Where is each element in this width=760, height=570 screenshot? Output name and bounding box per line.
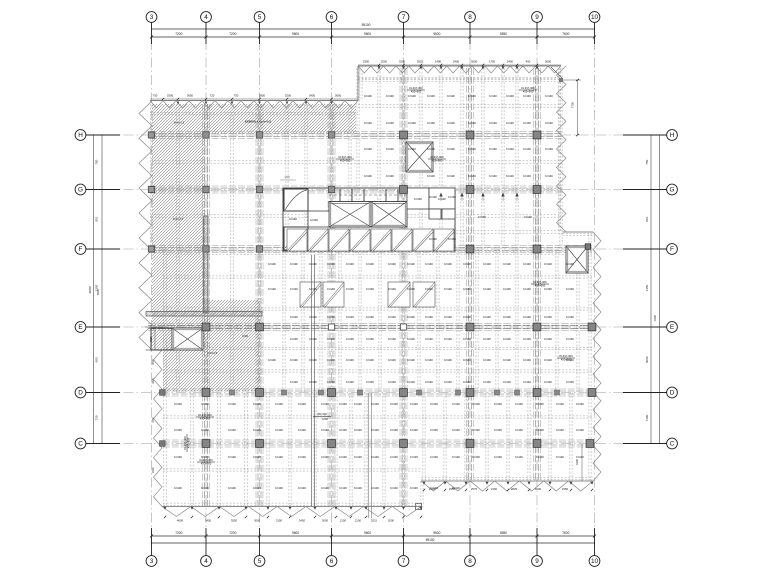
svg-text:b=100: b=100 <box>523 121 531 125</box>
svg-text:59100: 59100 <box>362 23 371 27</box>
svg-text:b=100: b=100 <box>346 337 354 341</box>
svg-text:b=100: b=100 <box>201 428 209 432</box>
svg-text:b=100: b=100 <box>321 486 329 490</box>
svg-text:b=100: b=100 <box>388 358 396 362</box>
svg-text:b=100: b=100 <box>339 486 347 490</box>
svg-text:b=100: b=100 <box>366 262 374 266</box>
svg-text:b=100: b=100 <box>228 486 236 490</box>
svg-text:b=100: b=100 <box>472 402 480 406</box>
svg-text:b=b=1.5: b=b=1.5 <box>173 217 184 221</box>
svg-text:b=100: b=100 <box>506 147 514 151</box>
svg-text:3500: 3500 <box>471 60 478 64</box>
svg-text:3125: 3125 <box>150 336 153 342</box>
svg-text:b=100: b=100 <box>407 287 415 291</box>
svg-text:b=100: b=100 <box>472 428 480 432</box>
svg-text:2850: 2850 <box>259 94 266 98</box>
svg-text:b=100: b=100 <box>536 402 544 406</box>
svg-text:5900: 5900 <box>96 288 100 295</box>
svg-text:b=100: b=100 <box>228 455 236 459</box>
svg-text:b=100: b=100 <box>310 218 318 222</box>
svg-text:4: 4 <box>204 14 208 21</box>
svg-text:2350: 2350 <box>363 60 370 64</box>
svg-text:400×900: 400×900 <box>201 462 212 466</box>
svg-text:810: 810 <box>645 216 649 221</box>
svg-text:b=100: b=100 <box>346 380 354 384</box>
svg-text:400×900: 400×900 <box>200 417 211 421</box>
svg-text:b=100: b=100 <box>503 315 511 319</box>
svg-text:3200: 3200 <box>285 94 292 98</box>
svg-text:KL3(3) 300: KL3(3) 300 <box>521 86 535 90</box>
svg-text:b=100: b=100 <box>408 94 416 98</box>
svg-text:b=100: b=100 <box>321 455 329 459</box>
svg-text:b=100: b=100 <box>275 428 283 432</box>
svg-text:b=100: b=100 <box>489 147 497 151</box>
svg-text:b=100: b=100 <box>468 147 476 151</box>
svg-text:b=100: b=100 <box>407 315 415 319</box>
svg-text:b=100: b=100 <box>309 262 317 266</box>
svg-text:b=100: b=100 <box>430 455 438 459</box>
svg-text:b=100: b=100 <box>298 428 306 432</box>
svg-text:b=100: b=100 <box>228 402 236 406</box>
svg-text:b=100: b=100 <box>268 358 276 362</box>
svg-text:b=100: b=100 <box>447 121 455 125</box>
svg-text:7: 7 <box>402 14 406 21</box>
svg-text:b=100: b=100 <box>447 147 455 151</box>
svg-text:b=100: b=100 <box>544 337 552 341</box>
svg-text:b=100: b=100 <box>253 455 261 459</box>
svg-text:D: D <box>78 390 83 397</box>
svg-text:b=100: b=100 <box>298 486 306 490</box>
svg-text:b=100: b=100 <box>388 287 396 291</box>
svg-text:b=90: b=90 <box>322 417 328 421</box>
svg-text:2150: 2150 <box>340 519 347 523</box>
svg-text:b=100: b=100 <box>327 380 335 384</box>
svg-text:b=100: b=100 <box>503 358 511 362</box>
svg-text:b=100: b=100 <box>290 380 298 384</box>
svg-text:3250: 3250 <box>381 60 388 64</box>
svg-text:b=100: b=100 <box>489 121 497 125</box>
svg-text:5: 5 <box>258 14 262 21</box>
svg-text:b=100: b=100 <box>544 287 552 291</box>
svg-text:b=100: b=100 <box>346 287 354 291</box>
svg-text:b=100: b=100 <box>468 121 476 125</box>
svg-text:b=100: b=100 <box>366 315 374 319</box>
svg-text:b=100: b=100 <box>339 428 347 432</box>
svg-text:b=100: b=100 <box>468 94 476 98</box>
svg-text:b=100: b=100 <box>275 455 283 459</box>
svg-text:b=100: b=100 <box>444 287 452 291</box>
svg-text:b=100: b=100 <box>506 94 514 98</box>
svg-text:b=100: b=100 <box>576 455 584 459</box>
svg-text:43800: 43800 <box>88 286 92 294</box>
svg-text:b=100: b=100 <box>290 337 298 341</box>
svg-text:b=100: b=100 <box>346 262 354 266</box>
svg-text:E: E <box>78 324 82 331</box>
svg-text:b=100: b=100 <box>576 402 584 406</box>
svg-text:3000: 3000 <box>322 519 329 523</box>
svg-text:b=100: b=100 <box>452 455 460 459</box>
svg-text:400×900: 400×900 <box>535 284 546 288</box>
svg-text:750: 750 <box>234 94 239 98</box>
svg-text:3525: 3525 <box>417 60 424 64</box>
svg-text:7600: 7600 <box>562 32 569 36</box>
svg-text:b=100: b=100 <box>463 262 471 266</box>
svg-text:b=100: b=100 <box>544 315 552 319</box>
svg-text:b=100: b=100 <box>523 174 531 178</box>
svg-text:D: D <box>670 390 675 397</box>
svg-text:2150: 2150 <box>491 487 498 491</box>
svg-text:b=100: b=100 <box>309 380 317 384</box>
svg-text:b=100: b=100 <box>390 402 398 406</box>
svg-text:7200: 7200 <box>229 32 236 36</box>
svg-text:b=100: b=100 <box>201 402 209 406</box>
svg-text:b=100: b=100 <box>427 94 435 98</box>
svg-text:b=100: b=100 <box>364 94 372 98</box>
svg-text:2575: 2575 <box>471 487 478 491</box>
svg-text:9600: 9600 <box>364 531 371 535</box>
svg-text:4300: 4300 <box>653 314 657 321</box>
svg-text:b=100: b=100 <box>408 147 416 151</box>
svg-text:b=100: b=100 <box>366 380 374 384</box>
svg-text:b=100: b=100 <box>506 121 514 125</box>
svg-text:b=100: b=100 <box>268 287 276 291</box>
svg-text:F: F <box>670 246 674 253</box>
svg-text:H: H <box>670 132 675 139</box>
svg-text:b=100: b=100 <box>354 428 362 432</box>
svg-text:b=100: b=100 <box>327 315 335 319</box>
svg-text:b=100: b=100 <box>489 174 497 178</box>
svg-text:b=100: b=100 <box>523 358 531 362</box>
svg-text:F: F <box>79 246 83 253</box>
svg-text:b=100: b=100 <box>275 402 283 406</box>
svg-text:b=100: b=100 <box>523 380 531 384</box>
svg-text:b=100: b=100 <box>366 337 374 341</box>
svg-text:750: 750 <box>153 94 158 98</box>
svg-text:9600: 9600 <box>433 531 440 535</box>
svg-text:1350: 1350 <box>645 284 649 291</box>
svg-text:1715: 1715 <box>284 176 290 179</box>
svg-text:KL3(3) 300: KL3(3) 300 <box>199 458 213 462</box>
svg-text:b=100: b=100 <box>388 337 396 341</box>
svg-text:b=100: b=100 <box>298 455 306 459</box>
svg-text:3350: 3350 <box>562 487 569 491</box>
svg-text:2000: 2000 <box>388 519 395 523</box>
svg-text:b=100: b=100 <box>576 428 584 432</box>
svg-text:8: 8 <box>468 558 472 565</box>
svg-text:b=100: b=100 <box>545 121 553 125</box>
svg-text:b=100: b=100 <box>448 237 456 241</box>
svg-text:b=100: b=100 <box>410 428 418 432</box>
svg-text:b=100: b=100 <box>444 315 452 319</box>
svg-text:59100: 59100 <box>426 538 435 542</box>
svg-text:b=100: b=100 <box>429 195 437 199</box>
svg-text:b=100: b=100 <box>425 262 433 266</box>
svg-text:b=100: b=100 <box>386 94 394 98</box>
svg-text:3650: 3650 <box>187 94 194 98</box>
svg-text:5: 5 <box>258 558 262 565</box>
svg-text:b=100: b=100 <box>309 337 317 341</box>
svg-text:b=100: b=100 <box>545 147 553 151</box>
svg-text:10: 10 <box>591 558 599 565</box>
svg-text:8550: 8550 <box>500 32 507 36</box>
svg-text:b=100: b=100 <box>452 402 460 406</box>
svg-text:b=100: b=100 <box>566 287 574 291</box>
svg-text:b=100: b=100 <box>371 402 379 406</box>
svg-text:b=100: b=100 <box>468 174 476 178</box>
svg-text:C: C <box>78 441 83 448</box>
svg-text:3450: 3450 <box>309 94 316 98</box>
svg-text:b=100: b=100 <box>556 402 564 406</box>
svg-text:KL3(3) 300: KL3(3) 300 <box>533 280 547 284</box>
svg-text:b=100: b=100 <box>309 287 317 291</box>
svg-text:b=100: b=100 <box>430 402 438 406</box>
svg-text:b=100: b=100 <box>407 262 415 266</box>
svg-text:b=100: b=100 <box>275 486 283 490</box>
svg-text:b=100: b=100 <box>483 358 491 362</box>
svg-text:b=100: b=100 <box>290 315 298 319</box>
svg-text:b=100: b=100 <box>354 402 362 406</box>
svg-text:b=100: b=100 <box>463 287 471 291</box>
svg-text:H: H <box>78 132 83 139</box>
svg-text:b=100: b=100 <box>545 174 553 178</box>
svg-text:b=100: b=100 <box>503 287 511 291</box>
svg-text:b=100: b=100 <box>429 237 437 241</box>
svg-text:7200: 7200 <box>175 531 182 535</box>
svg-text:b=100: b=100 <box>544 380 552 384</box>
svg-text:600: 600 <box>95 357 99 362</box>
svg-text:b=100: b=100 <box>483 262 491 266</box>
svg-text:2400: 2400 <box>507 60 514 64</box>
svg-text:3200: 3200 <box>399 60 406 64</box>
svg-text:b=100: b=100 <box>444 262 452 266</box>
svg-text:b=100: b=100 <box>503 262 511 266</box>
svg-text:G: G <box>78 187 83 194</box>
svg-text:b=100: b=100 <box>425 337 433 341</box>
svg-text:450: 450 <box>526 60 531 64</box>
svg-text:4: 4 <box>204 558 208 565</box>
svg-text:1480: 1480 <box>435 60 442 64</box>
svg-text:4600: 4600 <box>177 519 184 523</box>
svg-text:400×900: 400×900 <box>432 159 443 163</box>
svg-text:b=100: b=100 <box>174 455 182 459</box>
svg-text:b=100: b=100 <box>228 428 236 432</box>
svg-text:b=100: b=100 <box>494 455 502 459</box>
svg-text:b=100: b=100 <box>410 402 418 406</box>
svg-text:b=100: b=100 <box>309 315 317 319</box>
svg-text:KL3(3) 300: KL3(3) 300 <box>559 354 573 358</box>
svg-text:2100: 2100 <box>355 519 362 523</box>
svg-text:b=100: b=100 <box>438 197 446 201</box>
svg-text:720: 720 <box>210 94 215 98</box>
svg-text:b=100: b=100 <box>364 147 372 151</box>
svg-text:b=100: b=100 <box>290 287 298 291</box>
svg-text:b=100: b=100 <box>430 428 438 432</box>
svg-text:400×900: 400×900 <box>411 90 422 94</box>
svg-text:b=100: b=100 <box>354 455 362 459</box>
svg-text:b=100: b=100 <box>201 486 209 490</box>
svg-text:b=100: b=100 <box>503 380 511 384</box>
svg-text:b=100: b=100 <box>321 402 329 406</box>
svg-text:b=100: b=100 <box>425 380 433 384</box>
svg-text:3600: 3600 <box>335 94 342 98</box>
svg-text:b=100: b=100 <box>489 94 497 98</box>
svg-text:b=100: b=100 <box>523 315 531 319</box>
svg-text:b=100: b=100 <box>536 428 544 432</box>
svg-text:730: 730 <box>95 415 99 420</box>
svg-text:b=100: b=100 <box>346 358 354 362</box>
svg-text:b=100: b=100 <box>425 358 433 362</box>
svg-text:b=100: b=100 <box>174 428 182 432</box>
svg-text:b=100: b=100 <box>483 380 491 384</box>
svg-text:b=100: b=100 <box>386 174 394 178</box>
svg-text:8550: 8550 <box>500 531 507 535</box>
svg-text:400×900: 400×900 <box>187 437 191 448</box>
svg-text:KL3(3) 300: KL3(3) 300 <box>338 155 352 159</box>
svg-text:b=100: b=100 <box>327 337 335 341</box>
svg-text:b=100: b=100 <box>503 337 511 341</box>
svg-text:7: 7 <box>402 558 406 565</box>
svg-text:b=100: b=100 <box>452 428 460 432</box>
svg-text:10: 10 <box>591 14 599 21</box>
svg-text:b=100: b=100 <box>366 287 374 291</box>
svg-text:750: 750 <box>645 159 649 164</box>
svg-text:b=100: b=100 <box>388 262 396 266</box>
svg-text:b=100: b=100 <box>523 287 531 291</box>
svg-text:3325: 3325 <box>152 378 155 384</box>
svg-text:KL3(3) 300: KL3(3) 300 <box>430 155 444 159</box>
svg-text:b=100: b=100 <box>174 486 182 490</box>
svg-text:b=100: b=100 <box>327 358 335 362</box>
svg-text:b=100: b=100 <box>386 121 394 125</box>
svg-text:b=100: b=100 <box>494 402 502 406</box>
svg-text:4300: 4300 <box>575 458 579 465</box>
svg-text:6000: 6000 <box>645 356 649 363</box>
svg-text:3550: 3550 <box>231 519 238 523</box>
svg-text:4750: 4750 <box>152 417 155 423</box>
svg-text:b=100: b=100 <box>556 455 564 459</box>
svg-text:b=100: b=100 <box>444 337 452 341</box>
svg-text:b=100: b=100 <box>290 262 298 266</box>
svg-text:G: G <box>670 187 675 194</box>
svg-text:b=100: b=100 <box>327 262 335 266</box>
svg-text:b=100: b=100 <box>366 358 374 362</box>
svg-text:8100: 8100 <box>152 467 155 473</box>
svg-text:KL3(3) 300: KL3(3) 300 <box>183 436 187 450</box>
svg-text:7600: 7600 <box>562 531 569 535</box>
svg-text:b=100: b=100 <box>390 428 398 432</box>
svg-text:b=100: b=100 <box>425 287 433 291</box>
svg-text:9: 9 <box>535 14 539 21</box>
svg-text:b=100: b=100 <box>364 174 372 178</box>
svg-text:3300: 3300 <box>167 94 174 98</box>
svg-text:3000: 3000 <box>152 359 155 365</box>
svg-text:b=100: b=100 <box>390 486 398 490</box>
svg-text:b=100: b=100 <box>321 428 329 432</box>
svg-text:KL3(3) 300: KL3(3) 300 <box>198 413 212 417</box>
svg-text:b=100: b=100 <box>388 315 396 319</box>
svg-text:b=b=1.5: b=b=1.5 <box>207 351 218 355</box>
svg-text:b=100: b=100 <box>407 380 415 384</box>
svg-text:b=100: b=100 <box>515 428 523 432</box>
svg-text:b=100: b=100 <box>268 262 276 266</box>
svg-text:b=100: b=100 <box>478 215 486 219</box>
svg-text:1750: 1750 <box>489 60 496 64</box>
svg-text:2400: 2400 <box>453 60 460 64</box>
svg-text:b=100: b=100 <box>494 428 502 432</box>
svg-text:b=100: b=100 <box>427 174 435 178</box>
svg-text:9600: 9600 <box>433 32 440 36</box>
svg-text:3500: 3500 <box>545 60 552 64</box>
svg-text:6: 6 <box>330 14 334 21</box>
svg-text:b=100: b=100 <box>463 337 471 341</box>
svg-text:E: E <box>670 324 674 331</box>
svg-text:6: 6 <box>330 558 334 565</box>
svg-text:3: 3 <box>150 558 154 565</box>
svg-text:b=100: b=100 <box>414 197 422 201</box>
svg-text:b=100: b=100 <box>544 358 552 362</box>
svg-text:400×900: 400×900 <box>561 358 572 362</box>
svg-text:b=100: b=100 <box>483 315 491 319</box>
svg-text:8: 8 <box>468 14 472 21</box>
svg-text:b=100: b=100 <box>463 380 471 384</box>
svg-text:b=100: b=100 <box>566 337 574 341</box>
svg-text:b=100: b=100 <box>253 428 261 432</box>
svg-text:7200: 7200 <box>175 32 182 36</box>
svg-text:7700: 7700 <box>571 101 575 108</box>
svg-text:b=100: b=100 <box>523 147 531 151</box>
svg-text:2521: 2521 <box>371 519 378 523</box>
svg-text:1130: 1130 <box>429 487 435 491</box>
svg-text:b=100: b=100 <box>390 455 398 459</box>
svg-text:b=100: b=100 <box>346 315 354 319</box>
svg-text:b=100: b=100 <box>523 262 531 266</box>
svg-text:C: C <box>670 441 675 448</box>
svg-text:b=100: b=100 <box>289 217 297 221</box>
svg-text:b=100: b=100 <box>523 337 531 341</box>
svg-text:b=100: b=100 <box>253 486 261 490</box>
svg-text:3: 3 <box>150 14 154 21</box>
svg-text:b=100: b=100 <box>444 380 452 384</box>
svg-text:b=100: b=100 <box>463 358 471 362</box>
svg-text:b=100: b=100 <box>371 428 379 432</box>
svg-text:2825: 2825 <box>511 487 518 491</box>
svg-text:3450: 3450 <box>205 519 212 523</box>
svg-text:b=100: b=100 <box>556 428 564 432</box>
svg-text:b=100: b=100 <box>410 486 418 490</box>
svg-text:3150: 3150 <box>276 519 283 523</box>
svg-text:b=100: b=100 <box>408 121 416 125</box>
svg-text:b=100: b=100 <box>483 287 491 291</box>
svg-text:810: 810 <box>95 216 99 221</box>
svg-text:9600: 9600 <box>292 32 299 36</box>
svg-text:b=100: b=100 <box>524 215 532 219</box>
svg-text:b=100: b=100 <box>309 358 317 362</box>
svg-text:b=100: b=100 <box>506 174 514 178</box>
svg-text:b=100: b=100 <box>566 315 574 319</box>
svg-text:b=100: b=100 <box>388 380 396 384</box>
svg-text:b=100: b=100 <box>515 402 523 406</box>
svg-text:b=100: b=100 <box>371 455 379 459</box>
svg-text:3350: 3350 <box>449 487 456 491</box>
svg-text:3450: 3450 <box>299 519 306 523</box>
svg-text:300 302: 300 302 <box>317 412 327 416</box>
svg-text:7300: 7300 <box>645 414 649 421</box>
svg-text:b=100: b=100 <box>515 455 523 459</box>
svg-text:b=100: b=100 <box>407 337 415 341</box>
svg-text:b=100: b=100 <box>427 147 435 151</box>
svg-text:3050: 3050 <box>254 519 261 523</box>
svg-text:b=100: b=100 <box>472 455 480 459</box>
